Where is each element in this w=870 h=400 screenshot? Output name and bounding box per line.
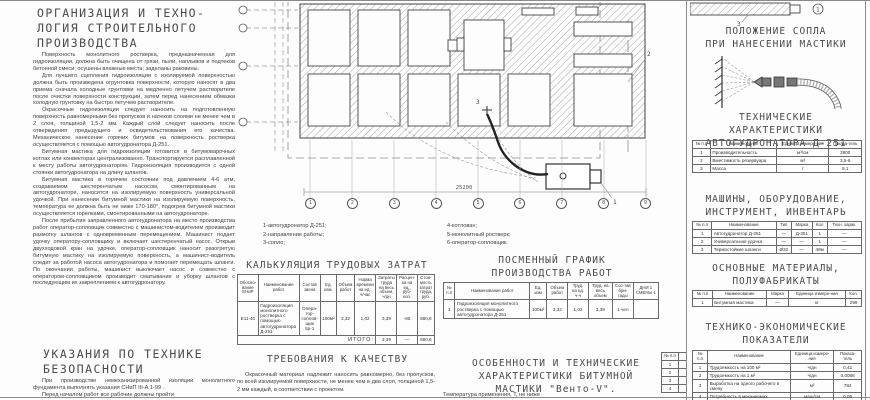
total-labor: 3,39 bbox=[376, 335, 397, 344]
nozzle-title: ПОЛОЖЕНИЕ СОПЛА ПРИ НАНЕСЕНИИ МАСТИКИ bbox=[690, 26, 862, 52]
table-cell: 1 чел bbox=[613, 300, 634, 318]
table-cell: 4 bbox=[693, 393, 708, 400]
total-cost: 680,6 bbox=[417, 335, 434, 344]
list-item: 9 bbox=[640, 198, 651, 209]
table-cell bbox=[633, 300, 658, 318]
table-header-cell: Объем работ bbox=[547, 283, 568, 300]
table-header-cell: Единица измере-ния bbox=[790, 351, 833, 364]
machines-title: МАШИНЫ, ОБОРУДОВАНИЕ, ИНСТРУМЕНТ, ИНВЕНТ… bbox=[690, 194, 862, 220]
table-header-cell: Наименование bbox=[712, 291, 767, 299]
table-header-cell: Техн. харак. bbox=[827, 222, 861, 230]
table-cell: Производительность bbox=[710, 148, 776, 156]
table-header-cell: № п.п bbox=[693, 291, 713, 299]
fragment-callout: 1 bbox=[816, 7, 820, 14]
table-header-cell: № п.п bbox=[693, 222, 712, 230]
table-header-cell: Ед. изм bbox=[530, 283, 547, 300]
table-header-cell: Марка bbox=[792, 222, 813, 230]
kalk-table: Обосно-вание ЕНиРНаименование работСоста… bbox=[237, 274, 435, 345]
table-cell: м³/см bbox=[777, 148, 829, 156]
table-cell: 4 bbox=[662, 385, 679, 393]
paragraph: Окрасочные гидроизоляции следует наносит… bbox=[33, 107, 235, 149]
foundation-plan-drawing: 1 2 3 25200 bbox=[236, 2, 686, 214]
table-header-cell: Наименование работ bbox=[455, 283, 530, 300]
table-header-cell: Труд. на весь объем bbox=[588, 283, 613, 300]
table-header-cell: Труд. на ед. ч-ч bbox=[568, 283, 588, 300]
svg-text:2: 2 bbox=[647, 51, 651, 58]
table-cell: Универсальная удочка bbox=[712, 237, 776, 245]
paragraph: Перед началом работ все рабочие должны п… bbox=[33, 392, 235, 398]
table-cell: 1,02 bbox=[354, 302, 376, 336]
table-row: 3Массат9,1 bbox=[693, 165, 862, 173]
list-item: 2-направление работы; bbox=[263, 231, 327, 240]
table-cell: 1 bbox=[693, 298, 713, 306]
left-axis-lines bbox=[246, 2, 298, 152]
table-cell: Термостойкие шланги bbox=[712, 246, 776, 254]
wall-hatch-ticks bbox=[715, 59, 722, 104]
table-cell: Трудоемкость на 1 м² bbox=[708, 371, 791, 379]
list-item: 3-сопло; bbox=[263, 239, 327, 248]
table-cell bbox=[679, 385, 687, 393]
table-cell: — bbox=[827, 229, 861, 237]
list-item: 5 bbox=[473, 198, 484, 209]
table-cell: 784 bbox=[834, 379, 862, 392]
list-item: 8 bbox=[598, 198, 609, 209]
table-cell: Битумная мастика bbox=[712, 298, 767, 306]
table-row: 2Вместимость резервуарам³3,5-6 bbox=[693, 156, 862, 164]
table-header-cell: Кол. bbox=[846, 291, 862, 299]
table-cell: 3 bbox=[693, 246, 712, 254]
paragraph: Битумная мастика в горячем состоянии под… bbox=[33, 177, 235, 219]
quality-text: Окрасочный материал надлежит наносить ра… bbox=[237, 372, 435, 398]
list-item: 4-котлован; bbox=[447, 222, 510, 231]
table-cell: 100м² bbox=[320, 302, 336, 336]
table-row: 3 bbox=[662, 377, 687, 385]
table-cell: Гидроизоляция монолитного ростверка с по… bbox=[258, 302, 299, 336]
detail-fragment-drawing: 1 3 bbox=[690, 0, 864, 26]
table-header-cell: Наименование bbox=[710, 141, 776, 149]
table-cell: м³ bbox=[777, 156, 829, 164]
table-header-cell: Обосно-вание ЕНиР bbox=[238, 275, 259, 302]
table-row: 2 bbox=[662, 368, 687, 376]
table-cell: Автогудронатор Д-251 bbox=[712, 229, 776, 237]
table-cell bbox=[679, 377, 687, 385]
table-cell: 680,6 bbox=[417, 302, 434, 336]
list-item: 3 bbox=[389, 198, 400, 209]
table-header-cell: Показа-тель bbox=[829, 141, 862, 149]
table-row: 1 bbox=[662, 360, 687, 368]
table-cell: 299 bbox=[846, 298, 862, 306]
table-cell: — bbox=[776, 229, 792, 237]
total-label: ИТОГО: bbox=[238, 335, 376, 344]
table-cell: ч/дн bbox=[790, 363, 833, 371]
table-cell bbox=[679, 360, 687, 368]
tep-title: ТЕХНИКО-ЭКОНОМИЧЕСКИЕ ПОКАЗАТЕЛИ bbox=[690, 322, 862, 348]
org-section-title: ОРГАНИЗАЦИЯ И ТЕХНО- ЛОГИЯ СТРОИТЕЛЬНОГО… bbox=[37, 6, 237, 51]
dimension-line: 25200 bbox=[304, 185, 646, 196]
table-header-cell: Норма времени на ед., ч/час bbox=[354, 275, 376, 302]
safety-section-text: При производстве немеханизированной изол… bbox=[33, 378, 235, 398]
table-cell: -85 bbox=[397, 302, 417, 336]
grafik-table: № п.пНаименование работЕд. измОбъем рабо… bbox=[443, 282, 659, 319]
table-row: 2Универсальная удочка——1— bbox=[693, 237, 862, 245]
table-cell: 3,32 bbox=[337, 302, 355, 336]
svg-text:3: 3 bbox=[476, 99, 480, 106]
table-cell: 3,39 bbox=[376, 302, 397, 336]
table-cell: 0,42 bbox=[834, 363, 862, 371]
paragraph: При производстве немеханизированной изол… bbox=[33, 378, 235, 392]
nozzle-position-drawing bbox=[700, 54, 860, 110]
table-cell: 3 bbox=[693, 165, 711, 173]
table-header-cell: Марка bbox=[767, 291, 788, 299]
table-cell: 48м bbox=[812, 246, 827, 254]
frame-right bbox=[865, 0, 866, 400]
table-cell: 1 bbox=[693, 148, 711, 156]
table-cell: — bbox=[767, 298, 788, 306]
mastic-text: Температура применения, Т, не ниже bbox=[443, 392, 643, 400]
materials-table: № п.пНаименованиеМаркаЕдиница измере-ния… bbox=[692, 290, 862, 307]
table-header-cell: Тип bbox=[776, 222, 792, 230]
list-item: 1-автогудронатор Д-251; bbox=[263, 222, 327, 231]
table-cell: 3 bbox=[662, 377, 679, 385]
paragraph: Для лучшего сцепления гидроизоляции с из… bbox=[33, 73, 235, 108]
list-item: 1 bbox=[305, 198, 316, 209]
table-row: 1Гидроизоляция монолитного ростверка с п… bbox=[444, 300, 659, 318]
machines-table: № п.пНаименованиеТипМаркаКолТехн. харак.… bbox=[692, 221, 862, 254]
kalk-title: КАЛЬКУЛЯЦИЯ ТРУДОВЫХ ЗАТРАТ bbox=[237, 260, 437, 273]
table-cell: 1 bbox=[693, 363, 708, 371]
table-cell: Е11-40 bbox=[238, 302, 259, 336]
table-row: 4Потребность в механизмахмаш/см0,06 bbox=[693, 393, 862, 400]
table-row: 4 bbox=[662, 385, 687, 393]
table-cell: Выработка на одного рабочего в смену bbox=[708, 379, 791, 392]
table-cell: — bbox=[792, 237, 813, 245]
table-cell: 1 bbox=[693, 229, 712, 237]
table-header-cell: Единица измере-ния bbox=[777, 141, 829, 149]
left-axis-circles bbox=[239, 6, 247, 126]
table-header-cell: Наименование bbox=[708, 351, 791, 364]
table-header-cell: Показа-тель bbox=[834, 351, 862, 364]
table-row: 1Трудоемкость на 100 м²ч/дн0,42 bbox=[693, 363, 862, 371]
table-header-cell: № п.п bbox=[444, 283, 455, 300]
paragraph: Битумная мастика для гидроизоляции готов… bbox=[33, 149, 235, 177]
table-cell: Вместимость резервуара bbox=[710, 156, 776, 164]
table-cell: 1 bbox=[812, 229, 827, 237]
mastic-title: ОСОБЕННОСТИ И ТЕХНИЧЕСКИЕ ХАРАКТЕРИСТИКИ… bbox=[452, 358, 660, 396]
table-row: 1Битумная мастика—кг299 bbox=[693, 298, 862, 306]
list-item: 2 bbox=[347, 198, 358, 209]
table-cell: 2 bbox=[693, 237, 712, 245]
table-row: 1Автогудронатор Д-251—Д-2511— bbox=[693, 229, 862, 237]
table-cell: 2800 bbox=[829, 148, 862, 156]
nozzle-hose bbox=[797, 82, 838, 109]
column-divider bbox=[686, 0, 687, 400]
table-cell: м² bbox=[790, 379, 833, 392]
paragraph: Поверхность монолитного ростверка, предн… bbox=[33, 52, 235, 73]
table-header-cell: Состав звена bbox=[299, 275, 320, 302]
table-row: 3Выработка на одного рабочего в сменум²7… bbox=[693, 379, 862, 392]
table-header-cell: ДНИ 1 СМЕНЫ 1 bbox=[633, 283, 658, 300]
table-header-cell: Стои-мость затрат труда, руб. bbox=[417, 275, 434, 302]
table-cell: Гидроизоляция монолитного ростверка с по… bbox=[455, 300, 530, 318]
table-cell: Д-251 bbox=[792, 229, 813, 237]
table-row: 2Трудоемкость на 1 м²ч/дн0,0088 bbox=[693, 371, 862, 379]
table-cell: 2 bbox=[662, 368, 679, 376]
table-cell: 9,1 bbox=[829, 165, 862, 173]
table-header-cell: № п.п bbox=[693, 141, 711, 149]
quality-title: ТРЕБОВАНИЯ К КАЧЕСТВУ bbox=[240, 354, 435, 367]
table-cell: 100м² bbox=[530, 300, 547, 318]
table-cell: 1 bbox=[662, 360, 679, 368]
table-header-cell: Объем работ bbox=[337, 275, 355, 302]
safety-section-title: УКАЗАНИЯ ПО ТЕХНИКЕ БЕЗОПАСНОСТИ bbox=[43, 347, 243, 377]
table-cell: маш/см bbox=[790, 393, 833, 400]
table-cell: кг bbox=[788, 298, 846, 306]
technology-map-sheet: ОРГАНИЗАЦИЯ И ТЕХНО- ЛОГИЯ СТРОИТЕЛЬНОГО… bbox=[0, 0, 870, 400]
plan-legend-col1: 1-автогудронатор Д-251;2-направление раб… bbox=[263, 222, 327, 248]
axis-ticks bbox=[310, 140, 646, 198]
table-cell: т bbox=[777, 165, 829, 173]
spray-fan bbox=[723, 59, 754, 100]
table-header-cell: Ед. изм. bbox=[320, 275, 336, 302]
table-cell: 0,0088 bbox=[834, 371, 862, 379]
nozzle-body bbox=[754, 77, 797, 87]
table-header-cell: Сос-тав бри-гады bbox=[613, 283, 634, 300]
table-cell: 1 bbox=[444, 300, 455, 318]
mastic-list-clipped: № п.п 1234 bbox=[661, 352, 686, 398]
org-section-text: Поверхность монолитного ростверка, предн… bbox=[33, 52, 235, 287]
list-item: 6-оператор-сопловщик. bbox=[447, 239, 510, 248]
list-item: 7 bbox=[556, 198, 567, 209]
list-header: № п.п bbox=[662, 353, 679, 361]
plan-legend-col2: 4-котлован;5-монолитный ростверк;6-опера… bbox=[447, 222, 510, 248]
table-cell: 2 bbox=[693, 156, 711, 164]
grafik-title: ПОСМЕННЫЙ ГРАФИК ПРОИЗВОДСТВА РАБОТ bbox=[443, 255, 661, 281]
table-row: Е11-40Гидроизоляция монолитного ростверк… bbox=[238, 302, 435, 336]
table-cell: — bbox=[792, 246, 813, 254]
list-item: 5-монолитный ростверк; bbox=[447, 231, 510, 240]
table-cell: Потребность в механизмах bbox=[708, 393, 791, 400]
table-cell: — bbox=[827, 246, 861, 254]
table-header-cell: Наименование работ bbox=[258, 275, 299, 302]
table-cell: Опера-тор-соплов-щик 5р-1 bbox=[299, 302, 320, 336]
table-row: 1Производительностьм³/см2800 bbox=[693, 148, 862, 156]
table-header-cell: Расцен-ка на ед., руб-коп. bbox=[397, 275, 417, 302]
table-cell: — bbox=[776, 237, 792, 245]
table-header-cell: Наименование bbox=[712, 222, 776, 230]
table-header-cell: № п.п bbox=[693, 351, 708, 364]
table-cell: 3,32 bbox=[547, 300, 568, 318]
table-cell: 0,06 bbox=[834, 393, 862, 400]
table-cell: — bbox=[827, 237, 861, 245]
table-cell: ч/дн bbox=[790, 371, 833, 379]
table-row: 3Термостойкие шлангиØ32—48м— bbox=[693, 246, 862, 254]
table-header-cell: Единица измере-ния bbox=[788, 291, 846, 299]
table-cell: 3,39 bbox=[588, 300, 613, 318]
table-row-total: ИТОГО: 3,39 — 680,6 bbox=[238, 335, 435, 344]
table-cell: Трудоемкость на 100 м² bbox=[708, 363, 791, 371]
paragraph: После прибытия заправленного автогудрона… bbox=[33, 218, 235, 287]
mastic-list-table: № п.п 1234 bbox=[661, 352, 686, 393]
table-cell: 1 bbox=[812, 237, 827, 245]
table-cell: 3 bbox=[693, 379, 708, 392]
table-cell: Ø32 bbox=[776, 246, 792, 254]
total-rate: — bbox=[397, 335, 417, 344]
list-item: 6 bbox=[514, 198, 525, 209]
table-cell bbox=[679, 368, 687, 376]
list-item: 4 bbox=[431, 198, 442, 209]
tep-table: № п.пНаименованиеЕдиница измере-нияПоказ… bbox=[692, 350, 862, 400]
table-cell: 3,5-6 bbox=[829, 156, 862, 164]
materials-title: ОСНОВНЫЕ МАТЕРИАЛЫ, ПОЛУФАБРИКАТЫ bbox=[690, 263, 862, 289]
table-cell: 1,02 bbox=[568, 300, 588, 318]
table-header-cell: Затраты труда на весь объем, ч/дн bbox=[376, 275, 397, 302]
table-cell: 2 bbox=[693, 371, 708, 379]
svg-text:25200: 25200 bbox=[456, 185, 473, 191]
tech-table: № п.пНаименованиеЕдиница измере-нияПоказ… bbox=[692, 140, 862, 173]
plan-axis-circles: 123456789 bbox=[305, 198, 651, 209]
table-cell: Масса bbox=[710, 165, 776, 173]
table-header-cell: Кол bbox=[812, 222, 827, 230]
